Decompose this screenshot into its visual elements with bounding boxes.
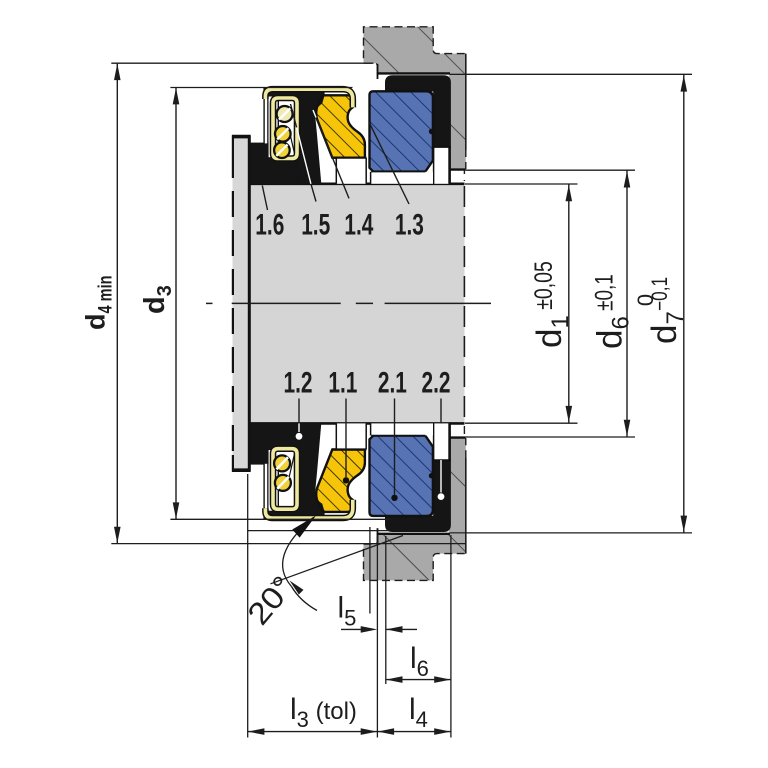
svg-text:1.5: 1.5 xyxy=(301,209,330,242)
svg-text:1.2: 1.2 xyxy=(284,367,313,400)
svg-text:1.3: 1.3 xyxy=(395,209,424,242)
svg-text:20°: 20° xyxy=(241,569,301,631)
svg-text:1.4: 1.4 xyxy=(344,209,373,242)
svg-text:d70−0,1: d70−0,1 xyxy=(633,277,689,344)
svg-text:d6 ±0,1: d6 ±0,1 xyxy=(591,274,635,349)
svg-text:l6: l6 xyxy=(410,642,429,681)
svg-text:d1 ±0,05: d1 ±0,05 xyxy=(530,261,574,348)
svg-text:2.2: 2.2 xyxy=(422,367,451,400)
svg-text:1.6: 1.6 xyxy=(255,209,284,242)
svg-text:d3: d3 xyxy=(139,285,176,314)
svg-text:d4 min: d4 min xyxy=(81,276,117,331)
svg-text:l4: l4 xyxy=(409,693,428,732)
svg-text:l3 (tol): l3 (tol) xyxy=(290,693,357,732)
svg-text:2.1: 2.1 xyxy=(378,367,407,400)
svg-text:1.1: 1.1 xyxy=(328,367,357,400)
svg-text:l5: l5 xyxy=(338,592,357,631)
